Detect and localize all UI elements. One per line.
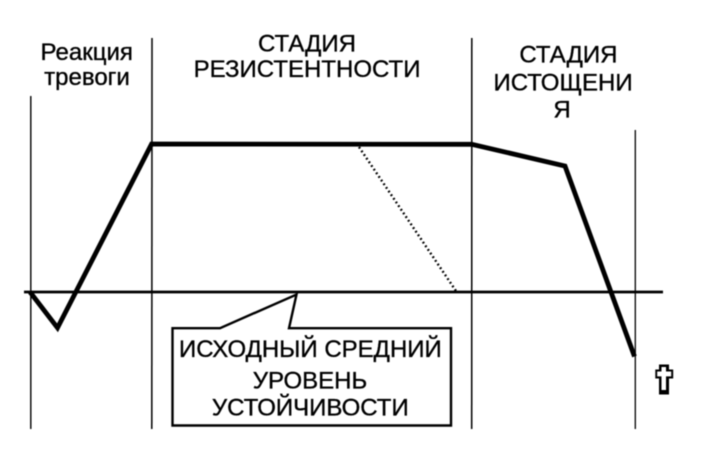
svg-text:ИСТОЩЕНИ: ИСТОЩЕНИ [493,70,632,97]
svg-text:УРОВЕНЬ: УРОВЕНЬ [253,368,368,395]
svg-text:СТАДИЯ: СТАДИЯ [258,31,356,58]
svg-text:тревоги: тревоги [44,64,130,91]
svg-text:Реакция: Реакция [41,39,133,66]
svg-text:ИСХОДНЫЙ СРЕДНИЙ: ИСХОДНЫЙ СРЕДНИЙ [179,335,442,363]
svg-text:УСТОЙЧИВОСТИ: УСТОЙЧИВОСТИ [212,394,409,422]
svg-text:Я: Я [553,96,570,123]
svg-text:СТАДИЯ: СТАДИЯ [519,42,617,69]
svg-text:РЕЗИСТЕНТНОСТИ: РЕЗИСТЕНТНОСТИ [194,56,421,83]
